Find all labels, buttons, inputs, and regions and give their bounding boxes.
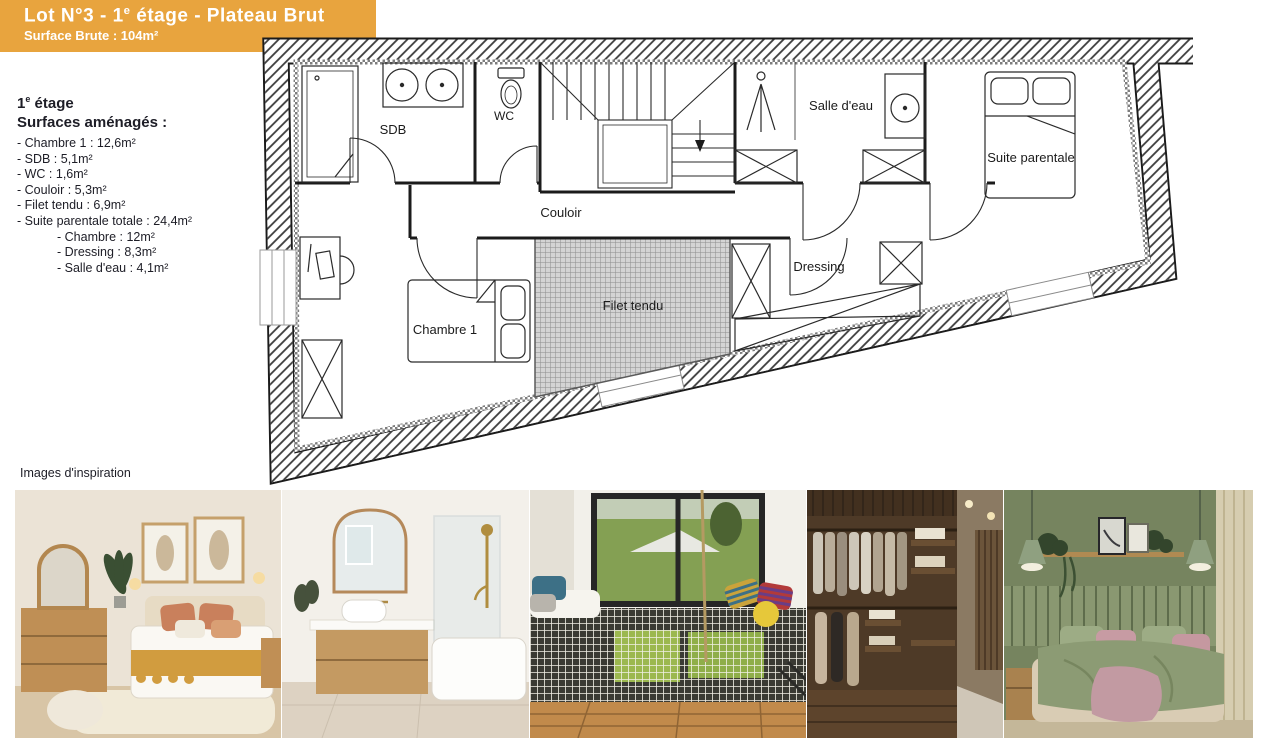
desk-icon (300, 237, 340, 299)
room-label-chambre1: Chambre 1 (413, 322, 477, 337)
stairs-down-arrow (695, 140, 705, 152)
page-title: Lot N°3 - 1e étage - Plateau Brut (0, 0, 376, 27)
floor-plan: SDB WC Couloir Salle d'eau Suite parenta… (255, 32, 1205, 490)
room-label-suite-parentale: Suite parentale (987, 150, 1074, 165)
toilet-icon (498, 68, 524, 108)
room-label-wc: WC (494, 109, 514, 123)
chair-icon (340, 256, 354, 284)
plan-sheet: Lot N°3 - 1e étage - Plateau Brut Surfac… (0, 0, 1261, 742)
surface-subitem: - Dressing : 8,3m² (57, 245, 267, 261)
surface-item: - Filet tendu : 6,9m² (17, 198, 267, 214)
surface-item: - Suite parentale totale : 24,4m² (17, 214, 267, 230)
inspiration-photo-net (530, 490, 806, 738)
surface-item: - Couloir : 5,3m² (17, 183, 267, 199)
double-sink-icon (383, 63, 463, 107)
bed-suite-icon (985, 72, 1075, 198)
inspiration-photo-bathroom (282, 490, 529, 738)
inspiration-photo-warm-boho-bedroom (15, 490, 281, 738)
shower-head-icon (757, 72, 765, 80)
room-label-couloir: Couloir (540, 205, 582, 220)
room-label-dressing: Dressing (793, 259, 844, 274)
staircase (540, 62, 735, 188)
surface-item: - Chambre 1 : 12,6m² (17, 136, 267, 152)
surface-item: - WC : 1,6m² (17, 167, 267, 183)
inspiration-caption: Images d'inspiration (20, 466, 131, 480)
surfaces-list: - Chambre 1 : 12,6m² - SDB : 5,1m² - WC … (17, 136, 267, 276)
inspiration-photos (0, 490, 1261, 738)
surface-subitem: - Chambre : 12m² (57, 230, 267, 246)
bed-icon (408, 280, 530, 362)
window-left (260, 250, 296, 325)
window-bottom-2 (1006, 272, 1094, 315)
room-label-sdb: SDB (380, 122, 407, 137)
surfaces-block: 1e étage Surfaces aménagés : - Chambre 1… (17, 90, 267, 276)
inspiration-photo-closet (807, 490, 1003, 738)
surface-subitem: - Salle d'eau : 4,1m² (57, 261, 267, 277)
salle-deau-fixtures (735, 62, 925, 183)
surfaces-subheading: Surfaces aménagés : (17, 113, 267, 132)
surface-item: - SDB : 5,1m² (17, 152, 267, 168)
inspiration-photo-green-bedroom (1004, 490, 1253, 738)
room-label-salle-deau: Salle d'eau (809, 98, 873, 113)
room-label-filet-tendu: Filet tendu (603, 298, 664, 313)
surfaces-heading: 1e étage (17, 90, 267, 113)
